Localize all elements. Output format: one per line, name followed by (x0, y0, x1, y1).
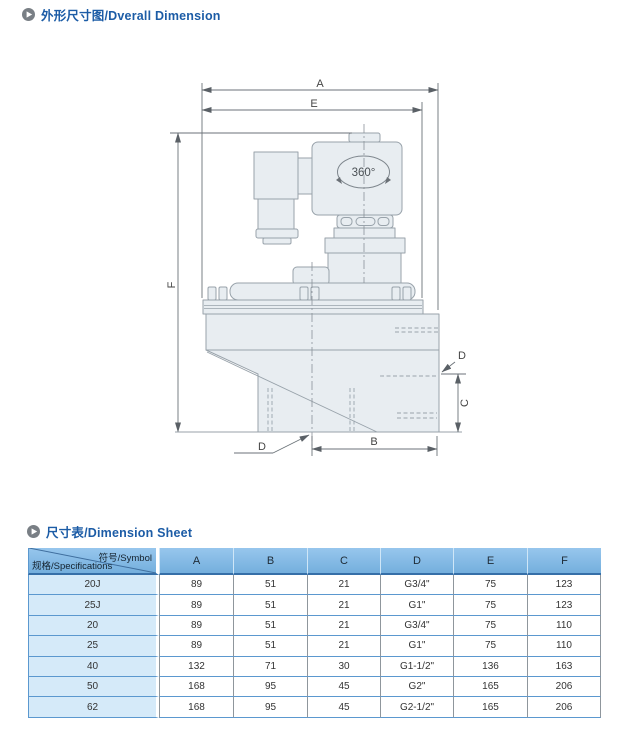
leader-d-right (442, 362, 455, 372)
value-cell-b: 51 (233, 575, 307, 595)
corner-spec-label: 规格/Specifications (32, 558, 112, 572)
value-cell-e: 165 (453, 677, 527, 697)
column-header-a: A (159, 548, 233, 575)
section-header-dimension-sheet: 尺寸表/Dimension Sheet (27, 522, 192, 541)
value-cell-f: 110 (527, 636, 601, 656)
value-cell-d: G1" (380, 595, 453, 615)
value-cell-a: 89 (159, 616, 233, 636)
value-cell-d: G3/4" (380, 616, 453, 636)
value-cell-b: 95 (233, 677, 307, 697)
value-cell-f: 123 (527, 595, 601, 615)
solenoid-cap (349, 133, 380, 142)
leader-d-bottom (234, 435, 309, 453)
value-cell-c: 45 (307, 697, 380, 717)
table-row: 62 168 95 45 G2-1/2" 165 206 (28, 697, 601, 717)
table-row: 25J 89 51 21 G1" 75 123 (28, 595, 601, 615)
dimension-table: 符号/Symbol 规格/Specifications A B C D E F … (28, 548, 601, 718)
dim-b-label: B (370, 436, 377, 448)
value-cell-e: 136 (453, 657, 527, 677)
value-cell-a: 132 (159, 657, 233, 677)
value-cell-c: 21 (307, 575, 380, 595)
value-cell-d: G3/4" (380, 575, 453, 595)
dim-c-label: C (459, 399, 471, 407)
table-header-row: 符号/Symbol 规格/Specifications A B C D E F (28, 548, 601, 575)
spec-cell: 50 (28, 677, 159, 697)
value-cell-d: G2-1/2" (380, 697, 453, 717)
coil-nut (325, 215, 405, 283)
dim-d-right-label: D (458, 350, 466, 362)
dim-f-label: F (166, 281, 178, 288)
value-cell-f: 123 (527, 575, 601, 595)
value-cell-f: 163 (527, 657, 601, 677)
column-header-d: D (380, 548, 453, 575)
value-cell-e: 75 (453, 636, 527, 656)
column-header-f: F (527, 548, 601, 575)
spec-cell: 20 (28, 616, 159, 636)
value-cell-d: G1" (380, 636, 453, 656)
table-corner-cell: 符号/Symbol 规格/Specifications (28, 548, 159, 575)
value-cell-b: 71 (233, 657, 307, 677)
spec-cell: 40 (28, 657, 159, 677)
value-cell-c: 21 (307, 616, 380, 636)
value-cell-f: 110 (527, 616, 601, 636)
value-cell-a: 89 (159, 636, 233, 656)
value-cell-e: 165 (453, 697, 527, 717)
value-cell-b: 51 (233, 616, 307, 636)
value-cell-b: 95 (233, 697, 307, 717)
spec-cell: 25J (28, 595, 159, 615)
table-row: 50 168 95 45 G2" 165 206 (28, 677, 601, 697)
spec-cell: 25 (28, 636, 159, 656)
dim-e-label: E (310, 98, 317, 110)
value-cell-a: 168 (159, 697, 233, 717)
value-cell-a: 168 (159, 677, 233, 697)
table-row: 40 132 71 30 G1-1/2" 136 163 (28, 657, 601, 677)
value-cell-a: 89 (159, 595, 233, 615)
dim-d-bottom-label: D (258, 441, 266, 453)
column-header-c: C (307, 548, 380, 575)
value-cell-e: 75 (453, 616, 527, 636)
value-cell-a: 89 (159, 575, 233, 595)
value-cell-c: 21 (307, 636, 380, 656)
value-cell-c: 21 (307, 595, 380, 615)
table-row: 20 89 51 21 G3/4" 75 110 (28, 616, 601, 636)
column-header-b: B (233, 548, 307, 575)
dim-a-label: A (316, 78, 324, 90)
value-cell-d: G2" (380, 677, 453, 697)
value-cell-f: 206 (527, 677, 601, 697)
value-cell-d: G1-1/2" (380, 657, 453, 677)
section-title: 尺寸表/Dimension Sheet (46, 522, 192, 541)
table-row: 25 89 51 21 G1" 75 110 (28, 636, 601, 656)
din-connector (254, 152, 314, 244)
value-cell-b: 51 (233, 636, 307, 656)
table-row: 20J 89 51 21 G3/4" 75 123 (28, 575, 601, 595)
value-cell-f: 206 (527, 697, 601, 717)
value-cell-e: 75 (453, 595, 527, 615)
column-header-e: E (453, 548, 527, 575)
dimension-table-body: 20J 89 51 21 G3/4" 75 123 25J 89 51 21 G… (28, 575, 601, 718)
value-cell-b: 51 (233, 595, 307, 615)
valve-flange (203, 300, 423, 314)
value-cell-e: 75 (453, 575, 527, 595)
valve-outlet-body (206, 350, 439, 432)
value-cell-c: 30 (307, 657, 380, 677)
spec-cell: 62 (28, 697, 159, 717)
spec-cell: 20J (28, 575, 159, 595)
rotation-label: 360° (352, 167, 376, 179)
play-bullet-icon (27, 525, 40, 538)
value-cell-c: 45 (307, 677, 380, 697)
valve-dimension-drawing: 360° (0, 0, 629, 505)
